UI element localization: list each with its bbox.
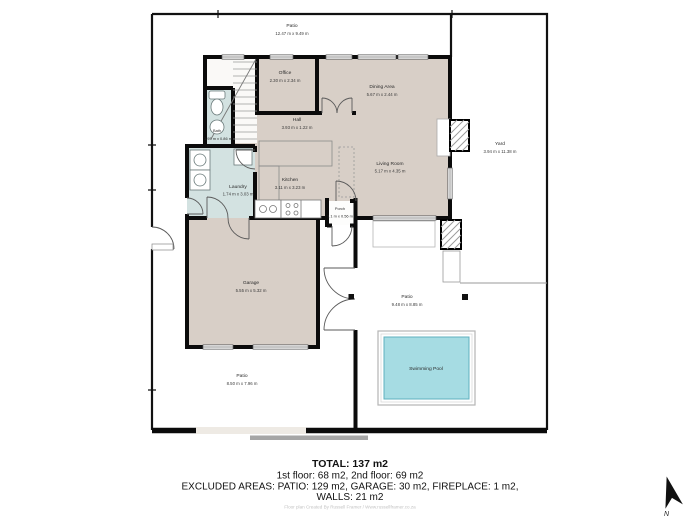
- kitchen-sink-icon: [260, 206, 267, 213]
- summary-floors: 1st floor: 68 m2, 2nd floor: 69 m2: [277, 471, 424, 482]
- stove-burner: [286, 204, 290, 208]
- stove-burner: [294, 211, 298, 215]
- north-label: N: [664, 511, 670, 518]
- patio-gate-leaf: [324, 299, 355, 330]
- window-step: [373, 221, 435, 247]
- room-label-bath: Bath: [213, 128, 221, 133]
- washer-icon: [194, 154, 206, 166]
- svg-text:5.17 m x 4.35 m: 5.17 m x 4.35 m: [375, 169, 406, 174]
- outside-step-strip: [250, 436, 368, 441]
- svg-text:8.50 m x 7.96 m: 8.50 m x 7.96 m: [227, 381, 258, 386]
- kitchen-sink-icon: [270, 206, 277, 213]
- toilet-icon: [209, 91, 225, 99]
- room-label-hall: Hall: [293, 117, 301, 123]
- svg-text:1.1 m x 0.56 m: 1.1 m x 0.56 m: [327, 214, 353, 219]
- stove-burner: [294, 204, 298, 208]
- area-summary: TOTAL: 137 m2 1st floor: 68 m2, 2nd floo…: [182, 458, 519, 510]
- bottom-wall: [152, 427, 547, 440]
- room-label-kitchen: Kitchen: [282, 177, 299, 183]
- room-label-patio-pool: Patio: [401, 294, 412, 300]
- svg-text:3.94 m x 11.38 m: 3.94 m x 11.38 m: [484, 149, 517, 154]
- room-label-laundry: Laundry: [229, 184, 247, 190]
- post: [349, 294, 355, 300]
- post: [462, 294, 468, 300]
- kitchen-sink-icon: [255, 200, 281, 218]
- laundry-tub-icon: [234, 149, 252, 165]
- svg-text:9.48 m x 8.85 m: 9.48 m x 8.85 m: [392, 302, 423, 307]
- room-label-patio-top: Patio: [286, 23, 297, 29]
- svg-text:5.67 m x 2.44 m: 5.67 m x 2.44 m: [367, 92, 398, 97]
- room-label-dining: Dining Area: [369, 84, 395, 90]
- room-label-living: Living Room: [376, 161, 403, 167]
- room-label-yard: Yard: [495, 141, 505, 147]
- driveway-opening: [196, 427, 306, 434]
- svg-text:12.47 m x 9.49 m: 12.47 m x 9.49 m: [275, 31, 309, 36]
- hearth: [437, 119, 450, 156]
- porch-door: [332, 226, 352, 246]
- summary-excluded: EXCLUDED AREAS: PATIO: 129 m2, GARAGE: 3…: [182, 482, 519, 493]
- room-label-garage: Garage: [243, 280, 260, 286]
- svg-text:1.95 m x 0.86 m: 1.95 m x 0.86 m: [204, 136, 232, 141]
- fireplace-icon: [441, 220, 461, 249]
- svg-text:1.74 m x 3.03 m: 1.74 m x 3.03 m: [223, 192, 254, 197]
- svg-text:3.93 m x 1.22 m: 3.93 m x 1.22 m: [282, 125, 313, 130]
- fireplace-icon: [450, 120, 469, 151]
- room-label-pool: Swimming Pool: [409, 366, 443, 372]
- gate-panel: [152, 244, 173, 250]
- floorplan-canvas: Patio 12.47 m x 9.49 m Office 2.30 m x 2…: [0, 0, 700, 525]
- chimney-base: [443, 251, 460, 282]
- north-arrow-icon: N: [658, 474, 683, 518]
- svg-text:5.55 m x 5.32 m: 5.55 m x 5.32 m: [236, 288, 267, 293]
- dryer-icon: [194, 174, 206, 186]
- room-label-porch: Porch: [335, 206, 345, 211]
- summary-total: TOTAL: 137 m2: [312, 458, 388, 470]
- credit-line: Floor plan Created By Russell Framer / W…: [284, 505, 416, 510]
- svg-text:2.30 m x 2.34 m: 2.30 m x 2.34 m: [270, 78, 301, 83]
- toilet-icon: [211, 99, 223, 115]
- room-label-office: Office: [279, 70, 292, 76]
- stove-burner: [286, 211, 290, 215]
- floorplan-svg: Patio 12.47 m x 9.49 m Office 2.30 m x 2…: [0, 0, 700, 525]
- svg-text:3.11 m x 3.23 m: 3.11 m x 3.23 m: [275, 185, 306, 190]
- summary-walls: WALLS: 21 m2: [317, 492, 384, 503]
- room-label-patio-bottom: Patio: [236, 373, 247, 379]
